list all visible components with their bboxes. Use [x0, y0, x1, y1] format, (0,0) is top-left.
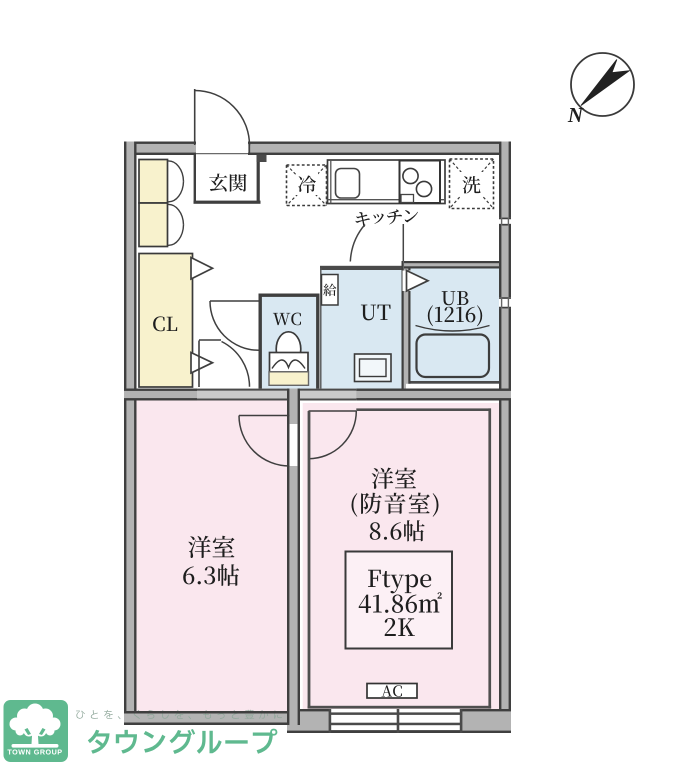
svg-text:TOWN GROUP: TOWN GROUP: [7, 748, 62, 757]
svg-text:N: N: [567, 103, 584, 127]
